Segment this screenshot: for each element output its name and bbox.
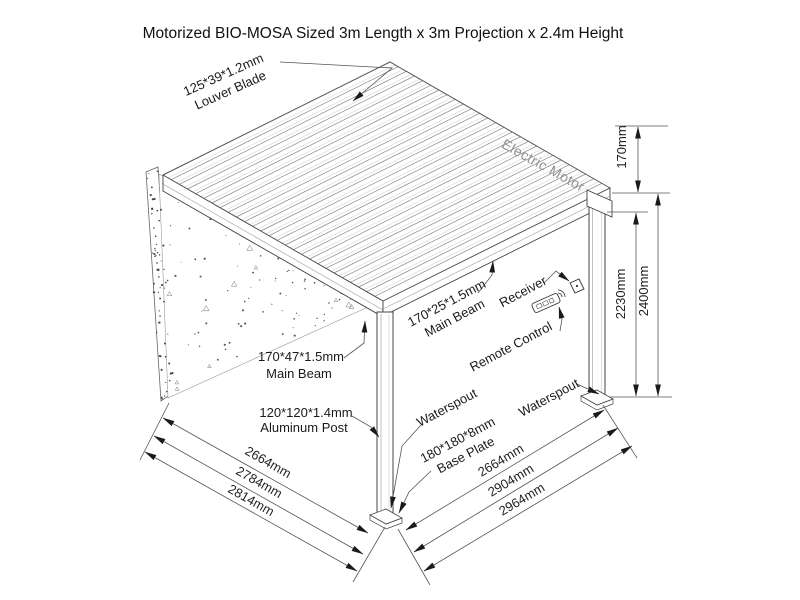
leader-base-plate	[399, 471, 431, 513]
leader-waterspout-left	[391, 425, 421, 508]
drawing-title: Motorized BIO-MOSA Sized 3m Length x 3m …	[143, 25, 624, 42]
dim-2400mm: 2400mm	[636, 266, 651, 317]
front-base-plate	[370, 509, 402, 529]
svg-text:Aluminum Post: Aluminum Post	[260, 420, 348, 435]
label-main-beam-left: 170*47*1.5mm Main Beam	[258, 349, 344, 381]
receiver-box	[570, 279, 584, 293]
label-waterspout-right: Waterspout	[516, 375, 582, 419]
pergola-technical-drawing: Motorized BIO-MOSA Sized 3m Length x 3m …	[0, 0, 800, 600]
dim-170mm: 170mm	[614, 125, 629, 168]
dim-2230mm: 2230mm	[613, 269, 628, 320]
svg-text:Main Beam: Main Beam	[266, 366, 332, 381]
leader-receiver	[544, 271, 569, 283]
label-louver-blade: 125*39*1.2mm Louver Blade	[181, 50, 273, 114]
label-aluminum-post: 120*120*1.4mm Aluminum Post	[259, 405, 352, 435]
front-post	[377, 312, 393, 520]
diagram-svg: Motorized BIO-MOSA Sized 3m Length x 3m …	[0, 0, 800, 600]
svg-text:Remote Control: Remote Control	[467, 319, 555, 375]
leader-main-beam-left	[344, 321, 365, 358]
label-remote-control: Remote Control	[467, 319, 555, 375]
right-post	[589, 200, 605, 398]
svg-text:120*120*1.4mm: 120*120*1.4mm	[259, 405, 352, 420]
leader-remote-control	[559, 307, 562, 331]
leader-aluminum-post	[352, 416, 379, 437]
svg-text:Waterspout: Waterspout	[516, 375, 582, 419]
label-waterspout-left: Waterspout	[414, 385, 480, 429]
svg-text:Waterspout: Waterspout	[414, 385, 480, 429]
svg-text:170*47*1.5mm: 170*47*1.5mm	[258, 349, 344, 364]
